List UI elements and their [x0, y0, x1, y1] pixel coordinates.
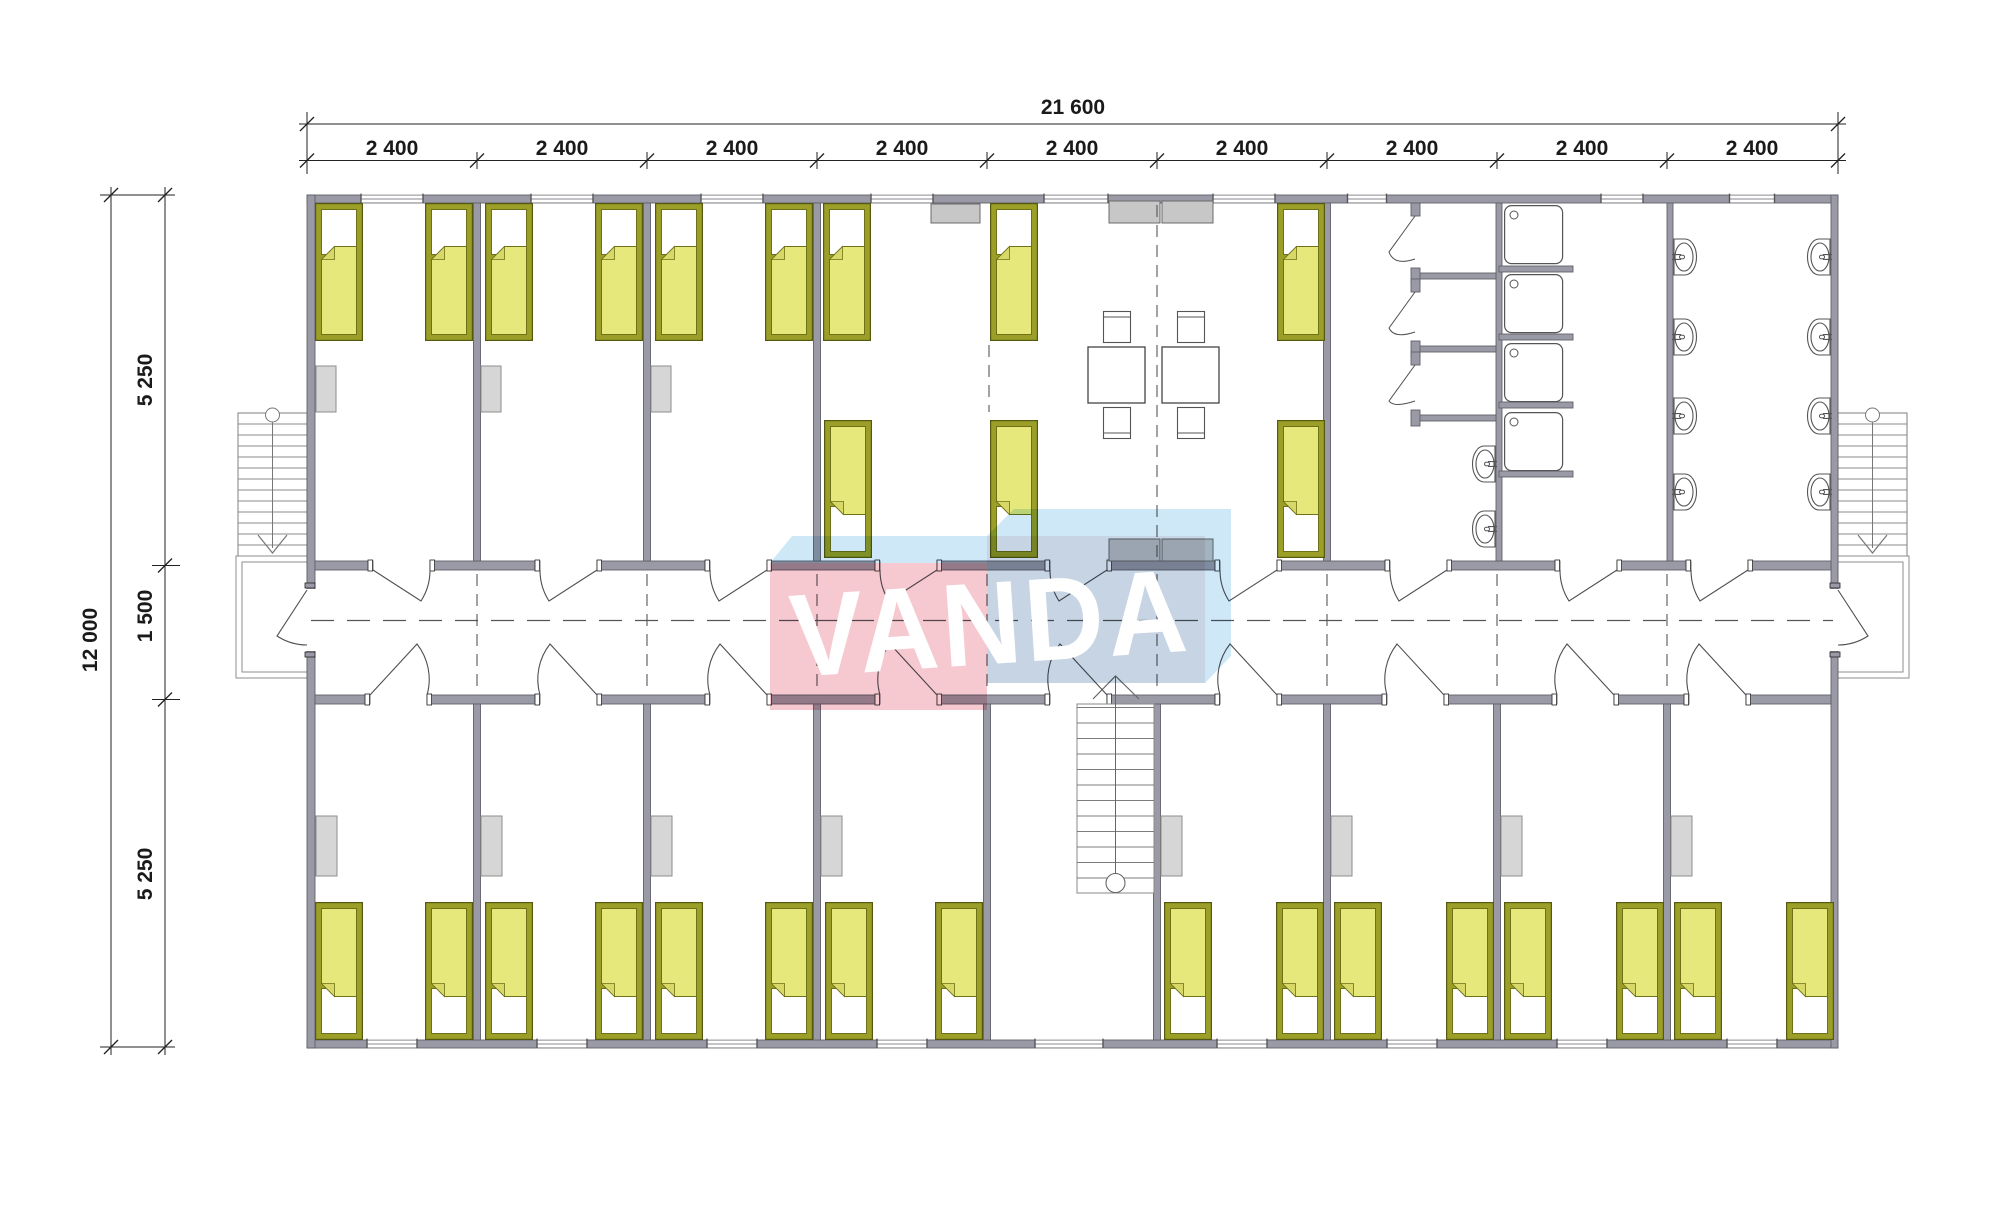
svg-text:2 400: 2 400: [706, 137, 759, 160]
svg-text:21 600: 21 600: [1041, 96, 1105, 119]
svg-text:2 400: 2 400: [1386, 137, 1439, 160]
svg-text:12 000: 12 000: [79, 608, 102, 672]
svg-text:5 250: 5 250: [134, 354, 157, 407]
svg-text:VANDA: VANDA: [786, 545, 1194, 703]
svg-text:2 400: 2 400: [536, 137, 589, 160]
svg-text:2 400: 2 400: [366, 137, 419, 160]
svg-text:2 400: 2 400: [1216, 137, 1269, 160]
svg-text:1 500: 1 500: [134, 590, 157, 643]
svg-text:2 400: 2 400: [1046, 137, 1099, 160]
svg-text:2 400: 2 400: [1556, 137, 1609, 160]
svg-text:2 400: 2 400: [876, 137, 929, 160]
svg-text:5 250: 5 250: [134, 848, 157, 901]
svg-text:2 400: 2 400: [1726, 137, 1779, 160]
